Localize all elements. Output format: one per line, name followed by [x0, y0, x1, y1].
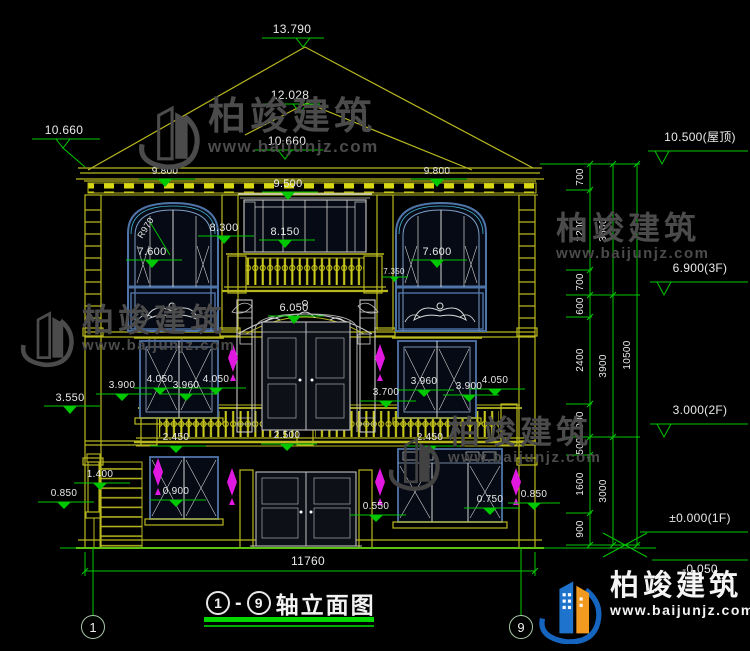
- elevation-label-735: 7.350: [383, 268, 405, 276]
- elevation-label-815: 8.150: [270, 227, 299, 238]
- watermark-url: www.baijunjz.com: [556, 245, 709, 262]
- title-underline-thick: [204, 617, 374, 622]
- elevation-label-605: 6.050: [279, 303, 308, 314]
- watermark-url: www.baijunjz.com: [208, 137, 379, 157]
- chain-seg-600: 600: [576, 297, 586, 315]
- watermark-url: www.baijunjz.com: [448, 449, 601, 466]
- base-label-085-left: 0.850: [51, 489, 78, 499]
- drawing-title: 1 - 9 轴立面图: [206, 586, 376, 620]
- chain-sub-3900: 3900: [599, 354, 609, 377]
- watermark-logo-icon: [388, 430, 440, 492]
- title-text: 轴立面图: [276, 586, 376, 620]
- elevation-label-760-left: 7.600: [137, 247, 166, 258]
- balcony-3f: [222, 254, 388, 293]
- elevation-label-3f: 6.900(3F): [673, 262, 728, 274]
- elevation-label-760-right: 7.600: [422, 247, 451, 258]
- axis-bubble-9: 9: [509, 615, 533, 639]
- chain-seg-900b: 900: [576, 520, 586, 538]
- title-axis-end: 9: [247, 591, 271, 615]
- door-2f: [262, 322, 350, 430]
- watermark-brand: 柏竣建筑: [82, 304, 235, 337]
- elevation-label-980-right: 9.800: [424, 167, 451, 177]
- elevation-label-1f: ±0.000(1F): [669, 512, 731, 524]
- sill-label-390-left: 3.900: [109, 381, 136, 391]
- chain-seg-700b: 700: [576, 273, 586, 291]
- watermark-right: 柏竣建筑 www.baijunjz.com: [556, 212, 709, 262]
- sill-label-055: 0.550: [363, 502, 390, 512]
- axis-bubble-1: 1: [81, 615, 105, 639]
- title-axis-start: 1: [206, 591, 230, 615]
- chain-grand-10500: 10500: [623, 340, 633, 369]
- cornice-dentils: [86, 183, 538, 195]
- sill-label-396-left: 3.960: [173, 381, 200, 391]
- cad-elevation-screenshot: 13.790 12.028 10.660 10.660 10.500(屋顶) 6…: [0, 0, 750, 651]
- elevation-label-830: 8.300: [209, 223, 238, 234]
- watermark-brand: 柏竣建筑: [448, 416, 601, 449]
- sill-label-405-a: 4.050: [147, 375, 174, 385]
- elevation-label-2f: 3.000(2F): [673, 404, 728, 416]
- elevation-label-roof-right: 10.500(屋顶): [664, 131, 736, 143]
- brand-logo-icon: [538, 572, 602, 644]
- watermark-left: 柏竣建筑 www.baijunjz.com: [20, 304, 235, 368]
- sill-label-370: 3.700: [373, 388, 400, 398]
- watermark-url: www.baijunjz.com: [82, 337, 235, 354]
- stair-label-140: 1.400: [87, 470, 114, 480]
- watermark-brand: 柏竣建筑: [556, 212, 709, 245]
- elevation-label-eave-left: 10.660: [45, 124, 84, 136]
- footer-url: www.baijunjz.com: [610, 602, 750, 618]
- watermark-brand: 柏竣建筑: [208, 98, 379, 137]
- sill-label-396-right: 3.960: [411, 377, 438, 387]
- title-dash: -: [235, 592, 242, 615]
- sill-label-390-right: 3.900: [456, 382, 483, 392]
- chain-seg-2400: 2400: [576, 348, 586, 371]
- elevation-label-peak: 13.790: [273, 23, 312, 35]
- watermark-top: 柏竣建筑 www.baijunjz.com: [138, 98, 379, 170]
- rail-label-250: 2.500: [274, 431, 301, 441]
- arch-window-right: [396, 203, 486, 331]
- sill-label-075: 0.750: [477, 495, 504, 505]
- watermark-footer-logo: 柏竣建筑 www.baijunjz.com: [538, 572, 750, 644]
- center-3f-window: [238, 194, 372, 252]
- title-underline-thin: [204, 625, 374, 627]
- sill-label-090: 0.900: [163, 487, 190, 497]
- watermark-logo-icon: [138, 98, 200, 170]
- sill-label-405-c: 4.050: [482, 376, 509, 386]
- elevation-label-355: 3.550: [55, 393, 84, 404]
- sill-label-405-b: 4.050: [203, 375, 230, 385]
- elevation-label-950: 9.500: [273, 179, 302, 190]
- rail-label-245-left: 2.450: [163, 433, 190, 443]
- watermark-center: 柏竣建筑 www.baijunjz.com: [388, 416, 601, 492]
- total-width-dimension: 11760: [291, 555, 325, 567]
- door-1f: [240, 470, 372, 548]
- chain-seg-700a: 700: [576, 168, 586, 186]
- footer-brand: 柏竣建筑: [610, 572, 750, 602]
- watermark-logo-icon: [20, 304, 74, 368]
